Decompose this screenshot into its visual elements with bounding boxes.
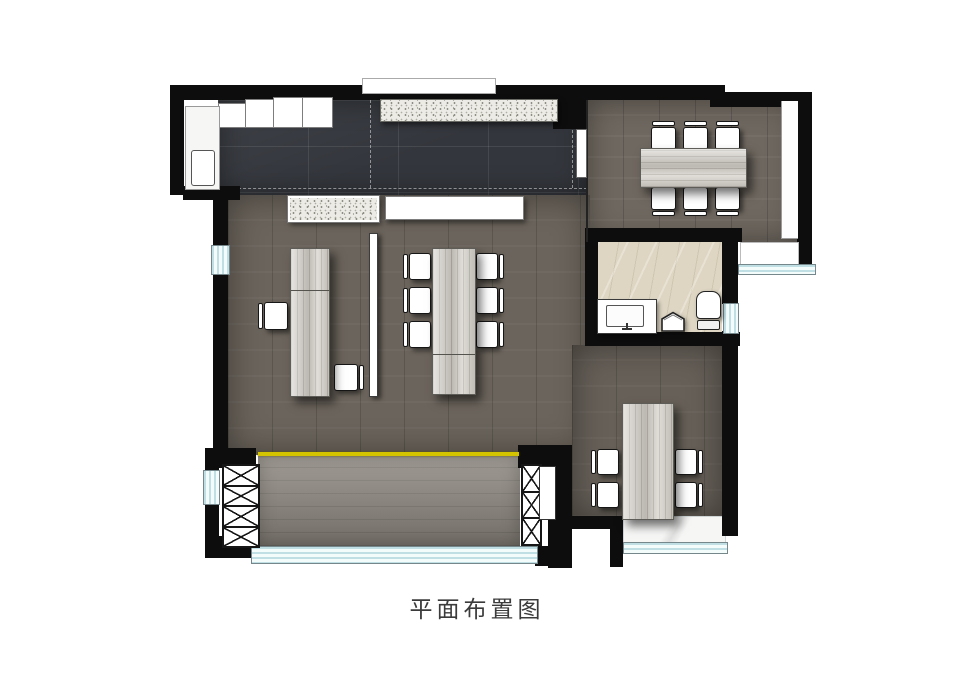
guest-chair	[597, 449, 619, 475]
meeting-chair	[683, 187, 708, 210]
wall-left-mid	[213, 200, 228, 450]
guest-chair	[597, 482, 619, 508]
meeting-chair	[683, 127, 708, 150]
x-brace-cell	[224, 466, 258, 485]
window-left-balcony	[203, 470, 220, 505]
yellow-threshold-line	[258, 452, 519, 456]
x-brace-cell	[523, 517, 540, 544]
x-brace-cell	[224, 485, 258, 506]
meeting-door-leaf	[576, 129, 587, 178]
partition-screen	[369, 233, 378, 397]
wall-cabinet-cell	[245, 99, 274, 128]
office-chair	[476, 253, 498, 280]
wall-niche	[362, 78, 496, 94]
wall-cabinet-cell	[218, 103, 246, 128]
mop-basin	[659, 310, 687, 333]
office-chair	[409, 253, 431, 280]
meeting-chair	[651, 127, 676, 150]
office-chair	[409, 287, 431, 314]
wall-right-meeting	[797, 100, 812, 268]
table-split-line	[433, 354, 475, 355]
floor-plan: 平面布置图	[0, 0, 980, 693]
window-balcony-bottom	[251, 546, 538, 564]
window-marble-balcony	[623, 542, 728, 554]
meeting-chair	[651, 187, 676, 210]
x-brace-cell	[523, 491, 540, 518]
office-chair	[409, 321, 431, 348]
wall-bathroom-top	[585, 228, 742, 242]
terrazzo-island-counter	[288, 196, 379, 222]
toilet-tank	[697, 320, 720, 330]
window-meeting-bay	[738, 264, 816, 275]
dashed-line	[370, 100, 371, 188]
floor-balcony	[258, 455, 520, 546]
office-chair	[476, 287, 498, 314]
desk-split-line	[291, 290, 329, 291]
workstation-table	[432, 248, 476, 395]
dashed-line	[218, 188, 587, 189]
toilet	[696, 291, 721, 330]
terrazzo-counter-top	[380, 99, 558, 122]
guest-chair	[675, 449, 697, 475]
wall-bathroom-bottom	[585, 332, 740, 346]
meeting-windowsill	[781, 101, 798, 239]
office-chair	[476, 321, 498, 348]
toilet-bowl	[696, 291, 721, 319]
island-counter	[385, 196, 524, 220]
window-bathroom	[723, 303, 739, 334]
private-office-desk	[622, 403, 674, 520]
plan-caption: 平面布置图	[410, 590, 545, 624]
meeting-chair	[715, 187, 740, 210]
office-desk-long	[290, 248, 330, 397]
meeting-chair	[715, 127, 740, 150]
office-chair	[264, 302, 288, 330]
wall-right-lower	[722, 331, 738, 536]
wall-right-upper	[722, 242, 738, 304]
wall-cabinet-cell	[273, 97, 303, 128]
wall-cabinet-cell	[302, 97, 333, 128]
wall-pantry-jut	[553, 100, 587, 129]
guest-chair	[675, 482, 697, 508]
x-brace-cell	[224, 526, 258, 547]
meeting-table	[640, 148, 747, 188]
counter-sink	[191, 150, 215, 186]
x-brace-cell	[523, 466, 540, 491]
x-braced-column	[222, 464, 260, 548]
faucet-icon	[622, 328, 632, 330]
wall-marble-left	[610, 516, 623, 567]
window-left-office	[211, 245, 230, 275]
sink-basin	[606, 305, 644, 327]
vanity-sink	[597, 299, 657, 334]
wall-left-outer	[170, 85, 184, 195]
balcony-door-panel	[539, 466, 556, 520]
x-brace-cell	[224, 505, 258, 526]
office-chair	[334, 364, 358, 391]
faucet-icon	[626, 323, 628, 328]
